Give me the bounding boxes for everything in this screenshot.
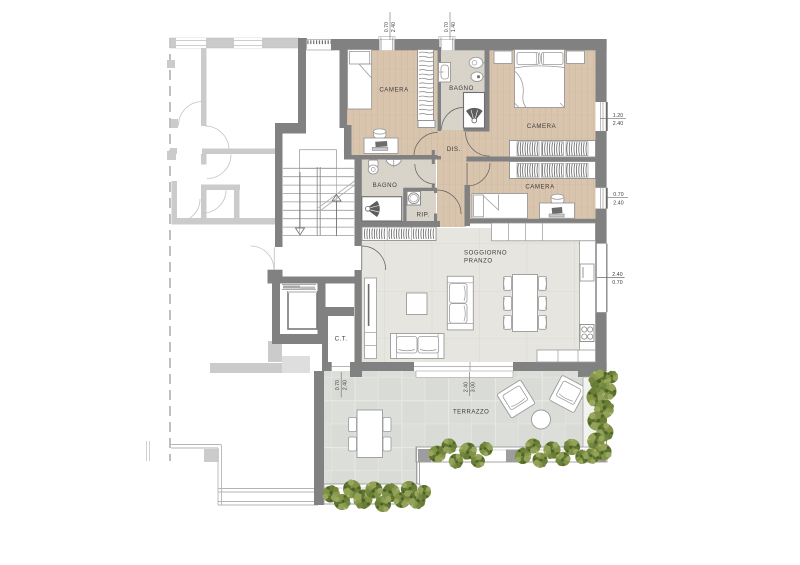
svg-text:2.40: 2.40 xyxy=(342,380,348,390)
svg-text:0.70: 0.70 xyxy=(335,380,341,390)
svg-text:CAMERA: CAMERA xyxy=(527,123,557,130)
svg-text:2.40: 2.40 xyxy=(612,272,623,278)
svg-text:3.00: 3.00 xyxy=(471,382,477,392)
svg-text:CAMERA: CAMERA xyxy=(379,87,409,94)
svg-text:2.40: 2.40 xyxy=(613,121,624,127)
svg-text:0.70: 0.70 xyxy=(613,192,624,198)
svg-text:1.20: 1.20 xyxy=(613,113,624,119)
svg-text:TERRAZZO: TERRAZZO xyxy=(453,410,489,416)
svg-text:SOGGIORNO: SOGGIORNO xyxy=(464,250,507,257)
svg-text:0.70: 0.70 xyxy=(384,22,390,32)
svg-text:2.40: 2.40 xyxy=(464,382,470,392)
svg-text:DIS.: DIS. xyxy=(447,146,461,153)
svg-text:2.40: 2.40 xyxy=(613,201,624,207)
svg-text:2.40: 2.40 xyxy=(391,22,397,32)
svg-text:C.T.: C.T. xyxy=(335,336,348,343)
svg-text:0.70: 0.70 xyxy=(444,22,450,32)
svg-text:1.40: 1.40 xyxy=(451,22,457,32)
svg-text:CAMERA: CAMERA xyxy=(525,184,555,191)
svg-text:BAGNO: BAGNO xyxy=(373,182,398,189)
svg-text:0.70: 0.70 xyxy=(612,280,623,286)
svg-text:BAGNO: BAGNO xyxy=(449,85,474,92)
svg-text:RIP.: RIP. xyxy=(416,211,429,218)
svg-text:PRANZO: PRANZO xyxy=(464,257,493,264)
